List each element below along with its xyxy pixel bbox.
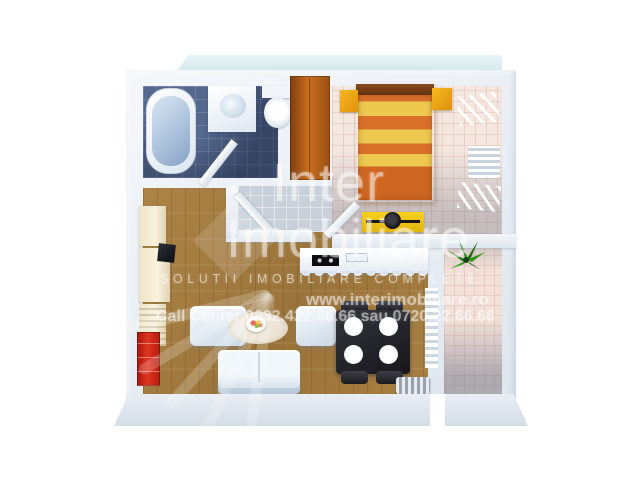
dining-chair <box>341 371 368 384</box>
nightstand-right <box>432 88 452 110</box>
nightstand-left <box>340 90 358 112</box>
floorplan-render: Inter Imobiliare® SOLUTII IMOBILIARE COM… <box>0 0 640 480</box>
radiator-panel <box>425 288 438 368</box>
wardrobe-door-seam <box>309 78 310 178</box>
tv <box>157 243 176 263</box>
bedroom-living-wall <box>332 234 516 248</box>
bed-striped-blanket <box>358 95 432 200</box>
red-cabinet <box>137 332 160 386</box>
wall-shelf-top <box>456 91 500 126</box>
radiator <box>396 377 430 394</box>
wall-shelf-bottom <box>457 182 501 212</box>
toilet-bowl <box>264 97 291 128</box>
dinner-plate <box>344 317 363 336</box>
plant <box>444 236 488 280</box>
vanity-stool <box>384 212 401 229</box>
wall-unit-top <box>139 206 166 246</box>
kitchen-sink <box>346 253 368 262</box>
balcony-wall-gap <box>430 394 445 428</box>
food <box>249 318 263 329</box>
dinner-plate <box>379 317 398 336</box>
dinner-plate <box>344 345 363 364</box>
bathtub-basin <box>152 96 190 166</box>
cooktop <box>312 255 339 266</box>
wall-shelf-middle <box>468 146 500 178</box>
sofa-cushion-seam <box>258 352 260 382</box>
washbasin-bowl <box>220 94 246 118</box>
armchair <box>296 306 336 346</box>
bottom-wall-apron <box>114 394 528 426</box>
double-bed <box>356 84 434 202</box>
kitchen-cabinet-fronts <box>300 271 428 278</box>
dinner-plate <box>379 345 398 364</box>
wardrobe <box>290 76 330 180</box>
